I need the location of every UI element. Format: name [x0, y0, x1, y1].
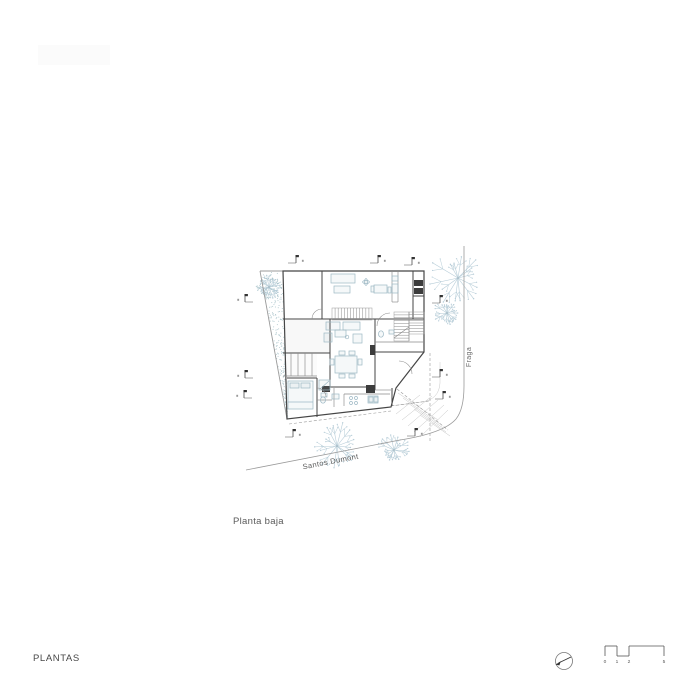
section-marker — [285, 429, 301, 437]
svg-text:2: 2 — [628, 659, 631, 665]
floor-plan-sheet: Santos Dumont Fraga 0125 — [0, 0, 700, 700]
section-marker — [236, 390, 252, 398]
section-marker — [404, 257, 420, 265]
svg-text:1: 1 — [616, 659, 619, 665]
section-marker — [407, 428, 423, 436]
street-label-fraga: Fraga — [466, 347, 473, 367]
section-marker — [288, 255, 304, 263]
section-marker — [432, 369, 448, 377]
sheet-title: PLANTAS — [33, 653, 80, 664]
north-arrow-icon — [556, 653, 573, 670]
section-marker — [237, 294, 253, 302]
floor-plan-drawing — [236, 246, 478, 470]
plan-caption: Planta baja — [233, 516, 284, 527]
section-marker — [435, 391, 451, 399]
section-marker — [237, 370, 253, 378]
svg-text:0: 0 — [604, 659, 607, 665]
section-marker — [370, 255, 386, 263]
scale-bar: 0125 — [604, 646, 666, 665]
svg-text:5: 5 — [663, 659, 666, 665]
drawing-sheet: Santos Dumont Fraga 0125 Planta baja PLA… — [0, 0, 700, 700]
street-label-santos-dumont: Santos Dumont — [302, 452, 360, 472]
